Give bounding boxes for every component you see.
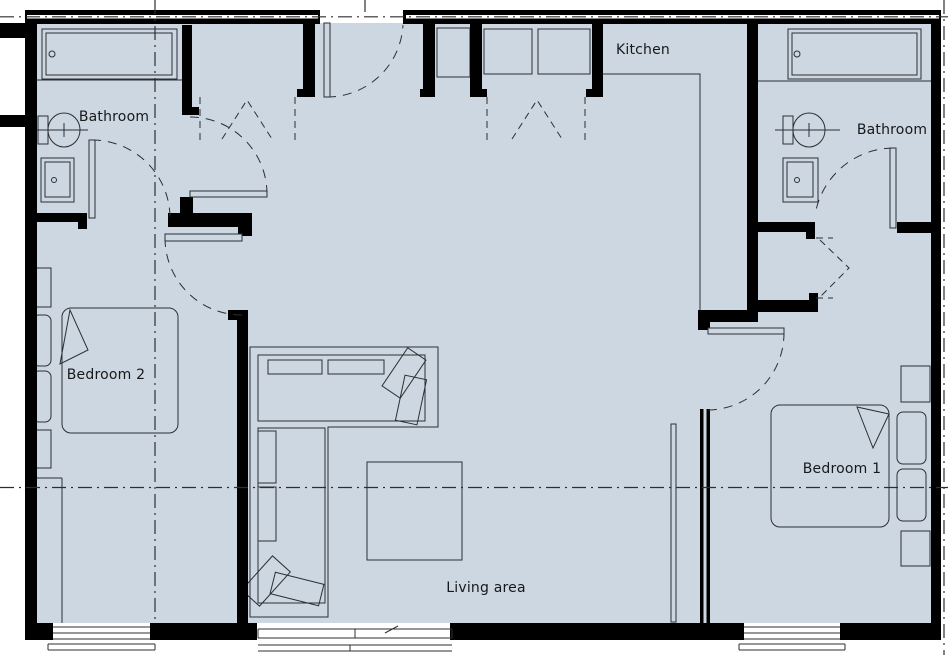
bedroom2-door-leaf: [165, 234, 242, 241]
wall-closet3-bottom: [758, 300, 818, 312]
wall-closet2-right: [592, 23, 603, 97]
label-bedroom-2: Bedroom 2: [67, 367, 145, 383]
wall-hall-piece: [168, 213, 252, 227]
label-living-area: Living area: [446, 580, 526, 596]
wall-counter-end: [698, 310, 758, 322]
top-margin: [0, 0, 948, 10]
wall-closet3-jamb: [809, 293, 818, 300]
bottom-margin: [0, 640, 948, 655]
floor-plan-canvas: Bathroom Kitchen Bathroom Bedroom 2 Bedr…: [0, 0, 948, 655]
wall-cavity-stripe-left: [27, 15, 318, 19]
wall-closet1-right-foot: [297, 89, 315, 97]
floor-plan: Bathroom Kitchen Bathroom Bedroom 2 Bedr…: [0, 0, 948, 655]
wall-closet1-right: [303, 23, 315, 97]
wall-bottom-3: [450, 623, 744, 640]
wall-right-exterior: [931, 23, 941, 640]
wall-bathleft-jamb: [78, 222, 87, 229]
bedroom1-door-leaf: [708, 328, 784, 334]
left-margin: [0, 0, 25, 655]
wall-stub-left-top: [0, 23, 25, 38]
bedroom2-window-opening: [53, 623, 150, 640]
bedroom1-window-opening: [744, 623, 840, 640]
wall-closet2-left-foot: [420, 89, 435, 97]
wall-bathleft-right-foot: [182, 107, 199, 115]
wall-bathright-bottom-left: [758, 222, 815, 232]
wall-kitchen-bath-divider: [747, 23, 758, 310]
wall-closet2-right-foot: [586, 89, 603, 97]
wall-bottom-4: [840, 623, 941, 640]
wall-bottom-1: [25, 623, 53, 640]
wall-hall-stub: [180, 197, 193, 213]
label-bedroom-1: Bedroom 1: [803, 461, 881, 477]
wall-closet2-mid-foot: [470, 89, 487, 97]
wall-stub-left-mid: [0, 115, 25, 127]
label-bathroom-left: Bathroom: [79, 109, 149, 125]
wall-closet2-left: [423, 23, 435, 97]
wall-left-exterior: [25, 23, 37, 623]
bedroom1-sliding-panel: [671, 424, 676, 622]
bathroom-right-door-leaf: [890, 148, 896, 228]
floor-base: [0, 0, 948, 655]
wall-bathleft-bottom: [25, 213, 87, 222]
wall-slider-track-outer: [700, 409, 704, 623]
living-window-opening: [257, 623, 450, 640]
wall-bathright-jamb: [806, 232, 815, 239]
wall-bathleft-right: [182, 25, 192, 115]
entry-door-leaf: [324, 23, 330, 97]
bathroom-left-door-leaf: [89, 140, 95, 218]
apartment-floor: [25, 13, 941, 640]
wall-bedroom2-living: [237, 310, 248, 623]
wall-bottom-2: [150, 623, 257, 640]
hall-door-leaf: [190, 191, 267, 197]
wall-slider-track-inner: [707, 409, 711, 623]
wall-closet2-mid: [470, 23, 482, 97]
label-bathroom-right: Bathroom: [857, 122, 927, 138]
wall-bathright-bottom-right: [897, 222, 941, 233]
label-kitchen: Kitchen: [616, 42, 670, 58]
